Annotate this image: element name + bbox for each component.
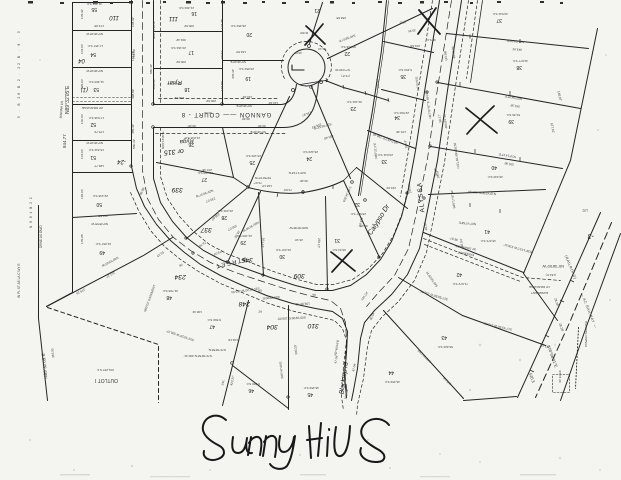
svg-text:(1): (1) (81, 86, 88, 92)
svg-text:39: 39 (508, 118, 514, 124)
svg-text:110.46': 110.46' (242, 95, 252, 99)
svg-text:S74°36'58"E: S74°36'58"E (209, 348, 226, 352)
svg-text:27: 27 (201, 176, 207, 182)
svg-text:5,453 S.F.: 5,453 S.F. (398, 68, 412, 72)
svg-text:26,354 S.F.: 26,354 S.F. (230, 24, 246, 28)
svg-text:20,164 S.F.: 20,164 S.F. (170, 46, 186, 50)
svg-text:132.87': 132.87' (220, 81, 224, 91)
svg-text:28,587 S.F.: 28,587 S.F. (350, 212, 366, 216)
svg-text:22,445 S.F.: 22,445 S.F. (92, 194, 108, 198)
svg-text:48: 48 (166, 294, 172, 300)
svg-text:580.42': 580.42' (149, 64, 153, 74)
svg-text:20' DRAINAGE: 20' DRAINAGE (82, 106, 103, 110)
svg-text:IN PL ST AE LA C WY E: IN PL ST AE LA C WY E (17, 264, 21, 298)
svg-text:N86°30'36"W: N86°30'36"W (290, 226, 308, 230)
svg-text:33,006 S.F.: 33,006 S.F. (340, 45, 356, 49)
svg-text:62: 62 (258, 310, 262, 314)
svg-text:204.58': 204.58' (98, 214, 108, 218)
svg-text:148.10': 148.10' (262, 184, 272, 188)
svg-text:8,589 S.F.: 8,589 S.F. (246, 382, 260, 386)
svg-text:31: 31 (334, 237, 340, 243)
svg-text:N0°46'40"W: N0°46'40"W (86, 141, 103, 145)
svg-text:174.08': 174.08' (131, 51, 135, 61)
svg-text:N0°46'40"W: N0°46'40"W (86, 32, 103, 36)
svg-text:108.32': 108.32' (131, 17, 135, 27)
svg-text:184.50': 184.50' (236, 50, 246, 54)
svg-text:N89°13'20"E: N89°13'20"E (161, 131, 165, 149)
svg-text:46,459 S.F.: 46,459 S.F. (384, 380, 400, 384)
svg-text:S23°17'43"E: S23°17'43"E (289, 171, 306, 175)
svg-text:30.39': 30.39' (187, 124, 196, 128)
svg-text:S74°36'58"E 330.31': S74°36'58"E 330.31' (183, 354, 212, 358)
svg-text:103.50: 103.50 (152, 79, 156, 89)
svg-text:48,374 S.F.: 48,374 S.F. (480, 239, 496, 243)
svg-text:74.63': 74.63' (283, 188, 292, 192)
svg-text:30: 30 (279, 253, 285, 259)
svg-text:200.82': 200.82' (174, 96, 184, 100)
svg-text:309: 309 (293, 272, 305, 279)
svg-text:GANNON —— COURT - 8: GANNON —— COURT - 8 (181, 111, 271, 117)
svg-text:170.46': 170.46' (396, 130, 406, 134)
svg-text:844.77: 844.77 (62, 134, 67, 148)
svg-text:253.65': 253.65' (336, 16, 346, 20)
svg-text:48,340 S.F.: 48,340 S.F. (487, 175, 503, 179)
svg-text:145.95': 145.95' (80, 234, 84, 244)
svg-text:41: 41 (484, 228, 490, 234)
svg-text:345: 345 (241, 256, 253, 263)
svg-text:53: 53 (93, 86, 99, 92)
svg-text:R=60': R=60' (300, 31, 308, 35)
svg-text:36 S.F.: 36 S.F. (426, 38, 436, 42)
svg-text:100.00': 100.00' (80, 114, 84, 124)
svg-text:110: 110 (109, 14, 119, 20)
svg-text:43.58: 43.58 (294, 51, 302, 55)
svg-text:108.31': 108.31' (192, 310, 202, 314)
svg-text:263.10': 263.10' (317, 238, 321, 249)
svg-text:N89°32'05"E: N89°32'05"E (65, 85, 71, 114)
svg-text:22,594 S.F.: 22,594 S.F. (393, 111, 409, 115)
svg-text:25: 25 (249, 159, 255, 165)
svg-text:126.77': 126.77' (94, 164, 104, 168)
svg-text:EASEMENT: EASEMENT (531, 291, 548, 295)
svg-text:32: 32 (354, 201, 360, 207)
svg-text:46: 46 (248, 387, 254, 393)
svg-text:200.82': 200.82' (206, 99, 216, 103)
svg-text:23: 23 (350, 105, 356, 111)
svg-text:109.00' 53: 109.00' 53 (295, 301, 310, 306)
svg-text:30.39': 30.39' (203, 111, 212, 115)
svg-text:38,34 S.F.: 38,34 S.F. (332, 248, 346, 252)
svg-text:102.16': 102.16' (228, 338, 238, 342)
svg-text:26,429 S.F.: 26,429 S.F. (302, 150, 318, 154)
svg-text:49: 49 (99, 249, 105, 255)
svg-text:28: 28 (221, 214, 227, 220)
svg-text:(75'): (75') (399, 20, 406, 25)
svg-text:200.82': 200.82' (184, 24, 194, 28)
svg-text:21: 21 (314, 7, 320, 13)
svg-text:N0°25'55"W: N0°25'55"W (91, 222, 108, 226)
svg-text:201,287 S.F.: 201,287 S.F. (96, 368, 114, 372)
svg-text:215.04': 215.04' (386, 186, 396, 190)
svg-text:24: 24 (306, 155, 312, 161)
svg-text:40: 40 (491, 164, 497, 170)
svg-text:52: 52 (90, 121, 96, 127)
svg-text:50: 50 (96, 201, 102, 207)
svg-text:OUTLOT I: OUTLOT I (95, 377, 118, 383)
svg-text:455.42': 455.42' (131, 124, 135, 134)
svg-text:234: 234 (174, 273, 187, 280)
svg-text:23,041 S.F.: 23,041 S.F. (377, 153, 393, 157)
svg-text:43,544 S.F.: 43,544 S.F. (492, 12, 508, 16)
svg-text:103.00': 103.00' (80, 149, 84, 159)
svg-text:35: 35 (400, 73, 406, 79)
svg-text:59°50'37"W: 59°50'37"W (255, 176, 271, 180)
svg-text:105.32': 105.32' (80, 9, 84, 19)
svg-text:201.68': 201.68' (410, 44, 420, 48)
svg-text:103.00': 103.00' (80, 44, 84, 54)
svg-text:S7°3'20"W: S7°3'20"W (335, 68, 350, 72)
svg-text:-3: -3 (588, 232, 594, 239)
svg-text:580.42': 580.42' (132, 139, 136, 149)
svg-text:N0°46'40"W: N0°46'40"W (86, 69, 103, 73)
svg-text:310: 310 (307, 322, 319, 329)
svg-text:44: 44 (388, 369, 394, 375)
svg-text:04: 04 (258, 288, 262, 292)
svg-text:38: 38 (516, 64, 522, 70)
svg-text:43: 43 (441, 334, 447, 340)
svg-text:N0°38'00"W: N0°38'00"W (542, 264, 564, 269)
svg-text:34°42': 34°42' (220, 50, 224, 59)
svg-text:20: 20 (246, 31, 252, 37)
svg-text:111: 111 (169, 15, 178, 21)
svg-text:28.10': 28.10' (294, 238, 303, 242)
svg-text:23,193 S.F.: 23,193 S.F. (197, 171, 213, 175)
svg-text:44,677 S.F.: 44,677 S.F. (512, 59, 528, 63)
svg-text:165.00': 165.00' (80, 189, 84, 199)
svg-text:74.97': 74.97' (253, 181, 262, 185)
svg-text:54: 54 (90, 51, 96, 57)
svg-text:51: 51 (90, 154, 96, 160)
svg-text:S0°46'40"E: S0°46'40"E (250, 130, 266, 134)
svg-text:31,788 S.F.: 31,788 S.F. (162, 289, 178, 293)
svg-text:174.08': 174.08' (94, 24, 104, 28)
svg-text:33: 33 (381, 158, 387, 164)
svg-text:339: 339 (171, 186, 183, 193)
svg-text:17,457 S.F.: 17,457 S.F. (87, 44, 103, 48)
svg-text:175.74': 175.74' (94, 130, 104, 134)
svg-text:40' ELEC: 40' ELEC (558, 369, 562, 383)
svg-text:21,394 S.F.: 21,394 S.F. (178, 6, 194, 10)
svg-text:103.35': 103.35' (220, 19, 224, 29)
svg-text:98,324 S.F.: 98,324 S.F. (437, 345, 453, 349)
svg-text:23,854 S.F.: 23,854 S.F. (238, 67, 254, 71)
svg-text:30.39': 30.39' (241, 117, 250, 121)
svg-text:34,194 S.F.: 34,194 S.F. (346, 100, 362, 104)
svg-text:46,459 S.F.: 46,459 S.F. (303, 386, 319, 390)
svg-text:71,672 S.F.: 71,672 S.F. (452, 282, 468, 286)
svg-text:54,39 S.F.: 54,39 S.F. (506, 113, 520, 117)
svg-text:304: 304 (266, 323, 278, 330)
svg-text:304.42': 304.42' (176, 38, 186, 42)
svg-text:DRNE AS OWD: DRNE AS OWD (39, 225, 43, 248)
svg-text:5 . B 28 B 2 . 22 B . 8 . 5: 5 . B 28 B 2 . 22 B . 8 . 5 (17, 29, 21, 118)
svg-text:18: 18 (184, 86, 190, 92)
svg-text:Ryan: Ryan (167, 79, 182, 86)
svg-text:17: 17 (188, 49, 194, 55)
svg-text:42: 42 (456, 271, 462, 277)
svg-text:(161.0'): (161.0') (546, 273, 556, 277)
svg-text:30.46': 30.46' (299, 179, 308, 183)
svg-text:17,546 S.F.: 17,546 S.F. (88, 116, 104, 120)
svg-text:22: 22 (344, 50, 350, 56)
svg-text:S0°46'40"E: S0°46'40"E (236, 104, 252, 108)
svg-text:45: 45 (307, 391, 313, 397)
svg-text:10' DRAINAGE: 10' DRAINAGE (529, 285, 550, 289)
svg-text:200.82': 200.82' (176, 60, 186, 64)
svg-text:54.13: 54.13 (318, 47, 326, 51)
svg-text:170': 170' (582, 208, 588, 212)
svg-text:47: 47 (209, 323, 215, 329)
svg-text:15,344 S.F.: 15,344 S.F. (88, 148, 104, 152)
svg-text:N89°13'20"E: N89°13'20"E (152, 21, 156, 39)
svg-text:498.89': 498.89' (131, 89, 135, 99)
svg-text:(74.8'): (74.8') (341, 74, 350, 78)
svg-text:24,237 S.F.: 24,237 S.F. (275, 248, 291, 252)
svg-text:41,393 S.F.: 41,393 S.F. (88, 80, 104, 84)
svg-text:28,103 S.F.: 28,103 S.F. (245, 154, 261, 158)
svg-text:S0°46'40"E: S0°46'40"E (230, 60, 246, 64)
svg-text:21,867 S.F.: 21,867 S.F. (95, 242, 111, 246)
svg-text:29: 29 (240, 239, 246, 245)
svg-text:04: 04 (312, 293, 316, 297)
svg-text:30.39': 30.39' (257, 124, 266, 128)
svg-text:04: 04 (78, 57, 85, 63)
svg-text:37: 37 (496, 17, 502, 23)
svg-text:248: 248 (238, 300, 251, 307)
svg-text:110.46': 110.46' (268, 101, 278, 105)
svg-text:337: 337 (200, 226, 212, 233)
svg-text:-24: -24 (117, 158, 126, 164)
svg-text:POWER SERVICE: POWER SERVICE (584, 321, 588, 347)
svg-text:Ryga: Ryga (179, 137, 194, 144)
svg-text:8,599 S.F.: 8,599 S.F. (207, 318, 221, 322)
svg-text:405.42': 405.42' (231, 69, 235, 79)
svg-text:19: 19 (245, 75, 251, 81)
svg-text:N 8 8 4 B 2 2: N 8 8 4 B 2 2 (29, 196, 33, 228)
